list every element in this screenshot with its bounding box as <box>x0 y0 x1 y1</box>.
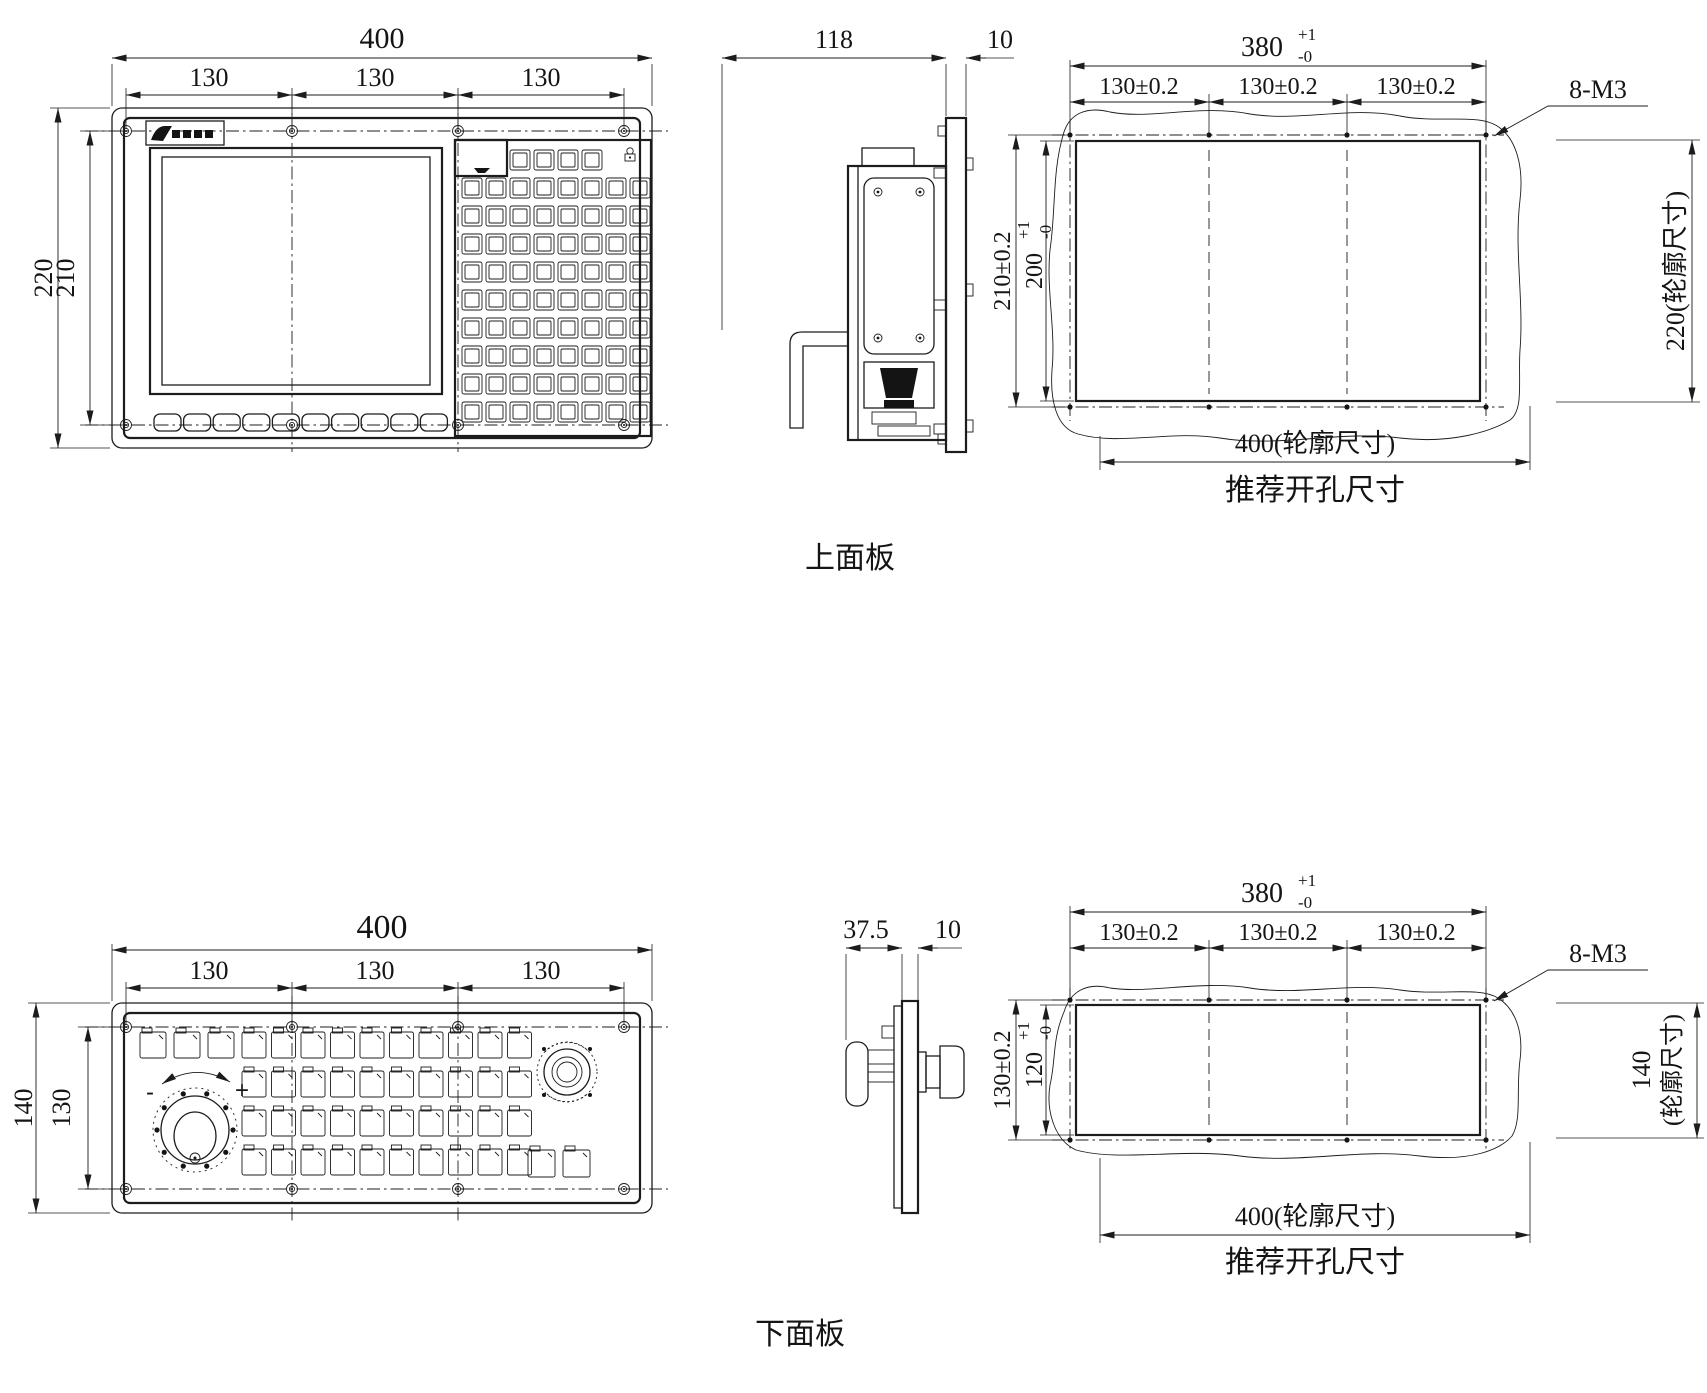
dim-lower-front-height: 140 <box>9 1089 38 1128</box>
dim-lower-front-pitch1: 130 <box>190 956 229 985</box>
keypad-key <box>606 206 626 226</box>
dim-upper-side-depth: 118 <box>815 25 853 54</box>
keypad-key <box>462 234 482 254</box>
keypad-key <box>582 178 602 198</box>
keypad-key <box>510 234 530 254</box>
upper-unit-body <box>848 166 946 440</box>
keypad-key <box>582 374 602 394</box>
dim-upper-cut-opening-height: 200 <box>1022 253 1048 289</box>
keypad-key <box>534 206 554 226</box>
dim-upper-cut-span-tol-plus: +1 <box>1298 25 1316 44</box>
lower-cutout-view: 380 +1 -0 130±0.2 130±0.2 130±0.2 130±0.… <box>990 871 1704 1279</box>
dim-lower-side-depth: 37.5 <box>843 915 889 944</box>
dim-lower-cut-opening-tol-plus: +1 <box>1014 1022 1033 1040</box>
dim-lower-cut-span-tol-plus: +1 <box>1298 871 1316 890</box>
dim-lower-front-width: 400 <box>357 909 408 946</box>
lower-panel-label: 下面板 <box>755 1318 845 1351</box>
keypad-key <box>462 318 482 338</box>
keypad-key <box>534 374 554 394</box>
function-key <box>154 414 181 431</box>
dim-lower-outline-height-value: 140 <box>1627 1051 1656 1090</box>
handwheel-dot <box>223 1105 228 1110</box>
dim-lower-cut-pitch1: 130±0.2 <box>1099 920 1178 946</box>
panel-key <box>301 1145 325 1175</box>
handwheel-dot <box>162 1105 167 1110</box>
estop-corner-dot <box>542 1093 546 1097</box>
function-key <box>391 414 418 431</box>
dim-lower-cut-pitch2: 130±0.2 <box>1238 920 1317 946</box>
keypad-key <box>534 262 554 282</box>
screw-hole-mark <box>1206 1137 1211 1142</box>
keypad-key <box>606 318 626 338</box>
keypad-key <box>534 290 554 310</box>
keypad-key <box>582 290 602 310</box>
panel-key <box>508 1106 532 1136</box>
keypad-keys <box>462 150 650 422</box>
panel-key <box>174 1028 200 1058</box>
keypad-key <box>606 374 626 394</box>
keypad-key <box>486 234 506 254</box>
panel-key <box>390 1067 414 1097</box>
lock-icon <box>625 148 635 161</box>
dim-upper-cut-hole-height: 210±0.2 <box>990 231 1016 310</box>
dim-upper-cut-span: 380 <box>1241 32 1283 63</box>
keypad-key <box>486 290 506 310</box>
panel-key <box>449 1145 473 1175</box>
keypad-key <box>510 374 530 394</box>
sheet-outline <box>1049 110 1521 441</box>
panel-cut-opening <box>1076 1005 1480 1135</box>
display-screen-inner <box>162 157 430 385</box>
keypad-key <box>462 374 482 394</box>
panel-key <box>390 1145 414 1175</box>
keypad-key <box>582 318 602 338</box>
dim-lower-cut-opening-height: 120 <box>1022 1052 1048 1088</box>
keypad-key <box>510 262 530 282</box>
dim-lower-cut-span: 380 <box>1241 878 1283 909</box>
dim-lower-cut-span-tol-minus: -0 <box>1298 893 1312 912</box>
estop-corner-dot <box>542 1047 546 1051</box>
keypad-key <box>510 290 530 310</box>
keypad-key <box>486 178 506 198</box>
screw-spec-upper: 8-M3 <box>1569 75 1627 104</box>
handwheel-dot <box>181 1164 186 1169</box>
panel-key <box>360 1145 384 1175</box>
screw-hole-mark <box>1067 404 1072 409</box>
dim-upper-cut-pitch2: 130±0.2 <box>1238 74 1317 100</box>
screw-hole-mark <box>1206 404 1211 409</box>
screw-hole-mark <box>1067 997 1072 1002</box>
handwheel-side-profile <box>846 1026 894 1106</box>
screw-hole-mark <box>1483 1137 1488 1142</box>
keypad-key <box>462 402 482 422</box>
estop-corner-dot <box>588 1047 592 1051</box>
dim-upper-front-pitch1: 130 <box>190 63 229 92</box>
panel-key <box>508 1028 532 1058</box>
handwheel-dot <box>181 1091 186 1096</box>
keypad-key <box>582 346 602 366</box>
screw-hole-mark <box>1344 1137 1349 1142</box>
handwheel-dot <box>204 1091 209 1096</box>
keypad-key <box>558 290 578 310</box>
panel-key <box>140 1028 166 1058</box>
panel-key <box>449 1106 473 1136</box>
function-key <box>361 414 388 431</box>
panel-key <box>563 1146 590 1177</box>
keypad-key <box>534 150 554 170</box>
screw-hole-mark <box>1067 1137 1072 1142</box>
function-key <box>420 414 447 431</box>
keypad-key <box>462 206 482 226</box>
keypad-key <box>510 178 530 198</box>
panel-key <box>390 1106 414 1136</box>
keypad-key <box>606 290 626 310</box>
dim-lower-cut-opening-tol-minus: -0 <box>1036 1026 1055 1040</box>
keypad-key <box>486 402 506 422</box>
screw-hole-mark <box>1344 997 1349 1002</box>
panel-key <box>449 1067 473 1097</box>
panel-key <box>478 1067 502 1097</box>
handwheel: - + <box>146 1072 249 1172</box>
function-key <box>213 414 240 431</box>
panel-key <box>508 1067 532 1097</box>
screw-hole-mark <box>1483 132 1488 137</box>
panel-key <box>419 1145 443 1175</box>
dim-lower-front-pitch3: 130 <box>522 956 561 985</box>
keypad-key <box>510 402 530 422</box>
panel-key <box>331 1145 355 1175</box>
panel-key <box>419 1106 443 1136</box>
handwheel-dot <box>154 1127 159 1132</box>
panel-key <box>242 1106 266 1136</box>
keypad-key <box>486 374 506 394</box>
dim-lower-outline-width: 400(轮廓尺寸) <box>1235 1202 1395 1231</box>
keypad-key <box>510 206 530 226</box>
engineering-drawing: 400 130 130 130 220 210 <box>0 0 1707 1393</box>
panel-key <box>301 1067 325 1097</box>
keypad-key <box>534 402 554 422</box>
keypad-key <box>558 178 578 198</box>
keypad-key <box>606 402 626 422</box>
keypad-key <box>486 346 506 366</box>
keypad-key <box>510 318 530 338</box>
keypad-key <box>462 346 482 366</box>
dim-upper-cut-span-tol-minus: -0 <box>1298 47 1312 66</box>
keypad-key <box>534 178 554 198</box>
panel-key <box>242 1145 266 1175</box>
keypad-key <box>558 346 578 366</box>
keypad-key <box>510 346 530 366</box>
keypad-key <box>582 150 602 170</box>
upper-side-view: 118 10 <box>722 25 1014 452</box>
panel-key <box>478 1028 502 1058</box>
keypad-key <box>558 374 578 394</box>
dim-upper-cut-opening-tol-minus: -0 <box>1036 225 1055 239</box>
keypad-key <box>606 262 626 282</box>
lower-panel-screws <box>121 1022 630 1195</box>
function-key <box>332 414 359 431</box>
keypad-key <box>462 290 482 310</box>
dim-upper-front-pitch3: 130 <box>522 63 561 92</box>
emergency-stop-side-profile <box>918 1046 964 1098</box>
handwheel-dot <box>230 1127 235 1132</box>
panel-cut-opening <box>1076 141 1480 401</box>
panel-key <box>360 1106 384 1136</box>
panel-key <box>419 1028 443 1058</box>
function-key-row <box>154 414 447 431</box>
keypad-key <box>606 178 626 198</box>
dim-upper-outline-width: 400(轮廓尺寸) <box>1235 429 1395 458</box>
dim-upper-front-width: 400 <box>360 22 405 55</box>
panel-key <box>360 1067 384 1097</box>
keypad-key <box>462 262 482 282</box>
dim-upper-front-hole-height: 210 <box>51 259 80 298</box>
dim-upper-cut-opening-tol-plus: +1 <box>1014 221 1033 239</box>
lower-side-view: 37.5 10 <box>843 915 964 1213</box>
function-key <box>302 414 329 431</box>
estop-corner-dot <box>588 1093 592 1097</box>
panel-key <box>478 1145 502 1175</box>
cutout-screw-holes <box>1067 997 1488 1142</box>
screw-hole-mark <box>1344 132 1349 137</box>
keypad-key <box>462 178 482 198</box>
panel-key <box>478 1106 502 1136</box>
panel-key <box>301 1106 325 1136</box>
keypad-area <box>455 140 651 436</box>
dim-upper-outline-height: 220(轮廓尺寸) <box>1661 191 1690 351</box>
keypad-key <box>558 150 578 170</box>
panel-key <box>390 1028 414 1058</box>
panel-key <box>331 1067 355 1097</box>
upper-panel-face <box>124 118 640 438</box>
keypad-key <box>510 150 530 170</box>
display-screen <box>150 148 442 394</box>
panel-key <box>360 1028 384 1058</box>
function-key <box>272 414 299 431</box>
upper-front-view: 400 130 130 130 220 210 <box>29 22 668 452</box>
keypad-key <box>486 262 506 282</box>
dim-lower-outline-height-suffix: (轮廓尺寸) <box>1659 1014 1686 1126</box>
handwheel-minus-label: - <box>146 1079 154 1106</box>
screw-hole-mark <box>1344 404 1349 409</box>
lower-front-view: 400 130 130 130 140 130 - + <box>9 909 668 1222</box>
keypad-key <box>558 206 578 226</box>
dim-lower-front-hole-height: 130 <box>47 1089 76 1128</box>
dim-lower-side-thickness: 10 <box>935 915 961 944</box>
keypad-key <box>582 234 602 254</box>
panel-key <box>208 1028 234 1058</box>
keypad-key <box>534 346 554 366</box>
keypad-key <box>486 206 506 226</box>
handwheel-dot <box>162 1150 167 1155</box>
keypad-key <box>582 262 602 282</box>
panel-key <box>242 1028 266 1058</box>
keypad-key <box>558 318 578 338</box>
panel-key <box>331 1106 355 1136</box>
function-key <box>184 414 211 431</box>
emergency-stop <box>537 1042 597 1102</box>
mounting-bracket <box>790 332 848 428</box>
keypad-key <box>558 262 578 282</box>
dim-lower-cut-hole-height: 130±0.2 <box>990 1030 1016 1109</box>
keypad-key <box>606 234 626 254</box>
upper-cutout-caption: 推荐开孔尺寸 <box>1225 474 1405 507</box>
keypad-key <box>486 318 506 338</box>
dim-upper-side-thickness: 10 <box>987 25 1013 54</box>
keypad-key <box>558 402 578 422</box>
upper-panel-label: 上面板 <box>805 542 895 575</box>
screw-spec-lower: 8-M3 <box>1569 939 1627 968</box>
dim-lower-cut-pitch3: 130±0.2 <box>1376 920 1455 946</box>
sheet-outline <box>1049 985 1521 1158</box>
panel-key <box>449 1028 473 1058</box>
cutout-screw-holes <box>1067 132 1488 409</box>
keypad-key <box>606 346 626 366</box>
dim-lower-front-pitch2: 130 <box>356 956 395 985</box>
keypad-key <box>534 234 554 254</box>
panel-key <box>528 1146 555 1177</box>
keypad-key <box>534 318 554 338</box>
connector-box <box>455 140 507 176</box>
screw-hole-mark <box>1483 997 1488 1002</box>
dim-upper-front-pitch2: 130 <box>356 63 395 92</box>
keypad-key <box>582 206 602 226</box>
screw-hole-mark <box>1483 404 1488 409</box>
panel-key <box>419 1067 443 1097</box>
screw-hole-mark <box>1206 997 1211 1002</box>
dim-upper-cut-pitch3: 130±0.2 <box>1376 74 1455 100</box>
dim-upper-cut-pitch1: 130±0.2 <box>1099 74 1178 100</box>
lower-panel-outline <box>112 1003 652 1213</box>
keypad-key <box>558 234 578 254</box>
connector-mark-icon <box>474 168 490 173</box>
upper-mounting-plate <box>946 118 966 452</box>
brand-logo <box>146 121 224 145</box>
function-key <box>243 414 270 431</box>
panel-key <box>301 1028 325 1058</box>
upper-cutout-view: 380 +1 -0 130±0.2 130±0.2 130±0.2 210±0.… <box>990 25 1700 507</box>
upper-panel-outline <box>112 108 652 448</box>
lower-cutout-caption: 推荐开孔尺寸 <box>1225 1246 1405 1279</box>
handwheel-dot <box>223 1150 228 1155</box>
keypad-key <box>582 402 602 422</box>
lower-mounting-plate <box>902 1001 918 1213</box>
handwheel-dot <box>204 1164 209 1169</box>
screw-hole-mark <box>1206 132 1211 137</box>
panel-key <box>331 1028 355 1058</box>
screw-hole-mark <box>1067 132 1072 137</box>
